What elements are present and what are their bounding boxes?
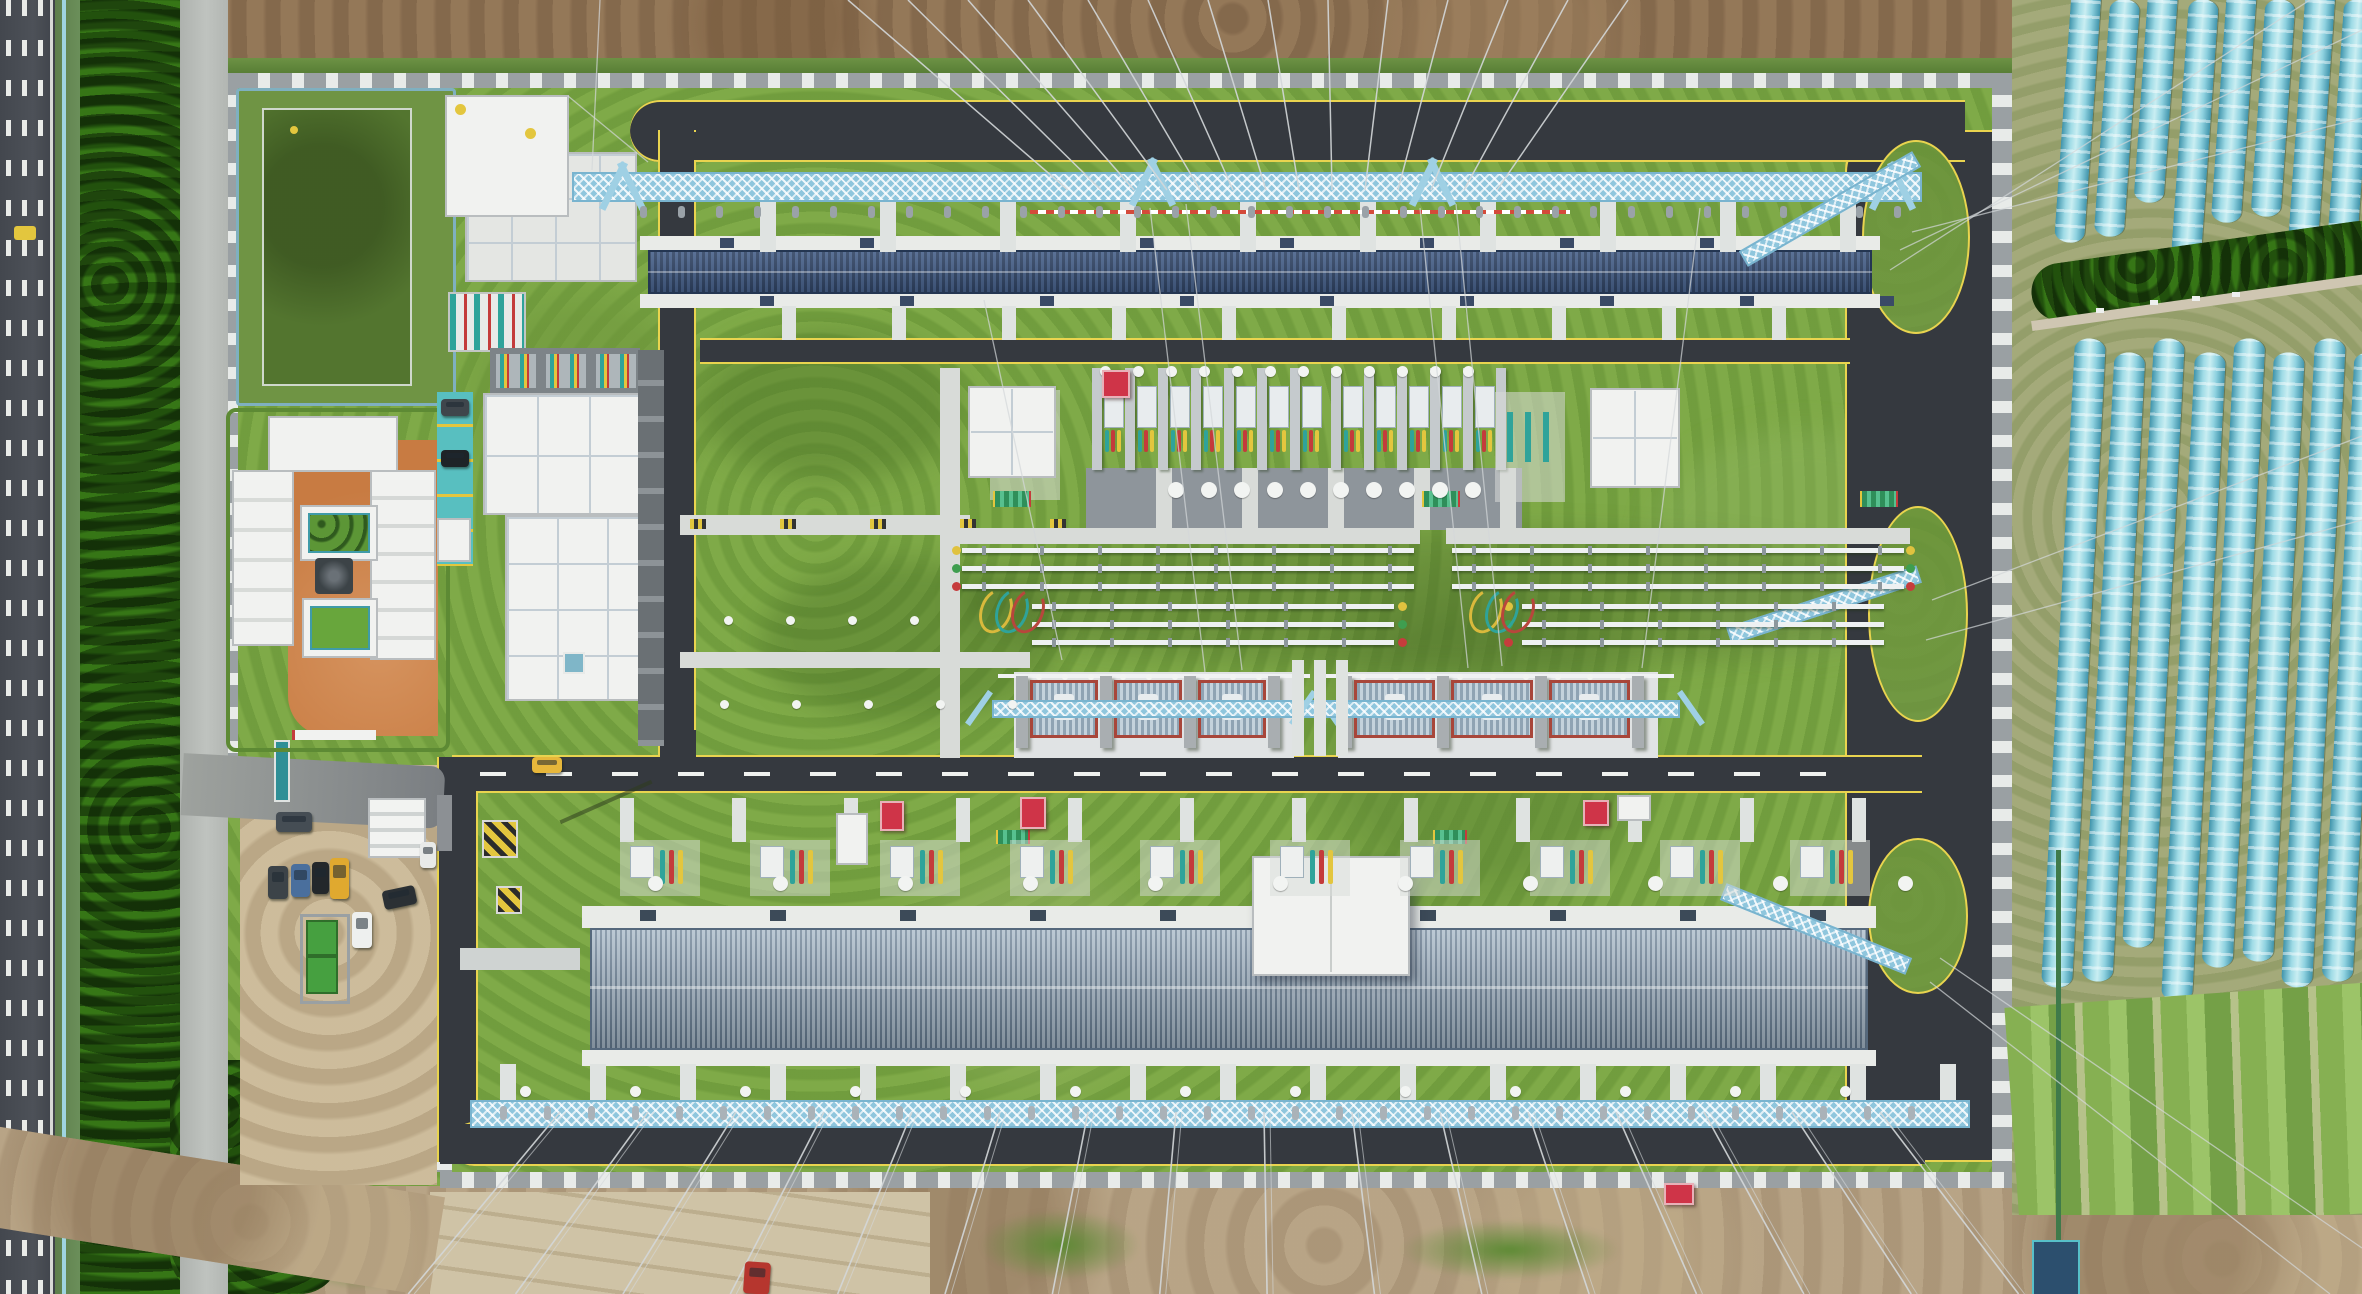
- insulator-dot: [1020, 206, 1027, 218]
- insulator-dot: [1134, 206, 1141, 218]
- bay-equipment: [1137, 386, 1157, 428]
- busbar-insulator: [1040, 582, 1044, 591]
- insulator-dot: [984, 1106, 991, 1120]
- busbar-insulator: [1284, 620, 1288, 629]
- ly-cable: [1068, 850, 1073, 884]
- cable-rack: [995, 491, 1029, 507]
- bay-cable: [1389, 430, 1393, 452]
- busbar-insulator: [1530, 546, 1534, 555]
- concrete-pier: [1516, 798, 1530, 842]
- insulator-dot: [1380, 1106, 1387, 1120]
- phase-marker: [1398, 602, 1407, 611]
- bay-equipment: [1442, 386, 1462, 428]
- insulator-dot: [1590, 206, 1597, 218]
- utility-hut: [437, 518, 471, 562]
- stone: [1234, 482, 1250, 498]
- ly-cable: [1458, 850, 1463, 884]
- duct-pier: [1314, 660, 1326, 756]
- busbar-insulator: [1832, 620, 1836, 629]
- stone: [1267, 482, 1283, 498]
- bushing: [1523, 674, 1529, 680]
- bay-equipment: [1170, 386, 1190, 428]
- ly-cable: [790, 850, 795, 884]
- busbar-insulator: [1878, 546, 1882, 555]
- bay-cable: [1237, 430, 1241, 452]
- bay-cable: [1204, 430, 1208, 452]
- stone: [1510, 1086, 1521, 1097]
- stone: [648, 876, 663, 891]
- busbar-insulator: [1530, 582, 1534, 591]
- bushing: [1555, 674, 1561, 680]
- busbar-insulator: [1052, 602, 1056, 611]
- bushing: [1204, 674, 1210, 680]
- bay-divider: [1397, 368, 1407, 470]
- stone: [1400, 1086, 1411, 1097]
- bay-equipment: [1203, 386, 1223, 428]
- busbar-insulator: [1110, 602, 1114, 611]
- insulator-dot: [1894, 206, 1901, 218]
- bay-cable: [1383, 430, 1387, 452]
- fire-equipment-box: [1583, 800, 1609, 826]
- blue-tarp-hut: [2032, 1240, 2080, 1294]
- phase-marker: [1504, 638, 1513, 647]
- ly-unit: [1280, 846, 1304, 878]
- insulator-dot: [940, 1106, 947, 1120]
- vehicle-speck: [2232, 292, 2240, 297]
- bay-cable: [1476, 430, 1480, 452]
- bay-cable: [1138, 430, 1142, 452]
- grass-island: [1868, 838, 1968, 994]
- bay-divider: [1463, 368, 1473, 470]
- busbar-insulator: [1820, 582, 1824, 591]
- concrete-pier: [956, 798, 970, 842]
- insulator-dot: [1780, 206, 1787, 218]
- concrete-pier: [770, 1064, 786, 1102]
- ring-road-top: [630, 100, 1965, 162]
- utility-hut: [836, 813, 868, 865]
- ly-cable: [669, 850, 674, 884]
- service-road: [180, 0, 228, 1294]
- stone: [720, 700, 729, 709]
- stone: [792, 700, 801, 709]
- busbar-insulator: [1774, 602, 1778, 611]
- ly-cable: [1328, 850, 1333, 884]
- ly-cable: [1198, 850, 1203, 884]
- stone: [1730, 1086, 1741, 1097]
- insulator-dot: [792, 206, 799, 218]
- bay-cable: [1350, 430, 1354, 452]
- duct-pier: [1336, 660, 1348, 756]
- concrete-pier: [1130, 1064, 1146, 1102]
- conductor-tube: [998, 674, 1310, 678]
- stone: [520, 1086, 531, 1097]
- bushing: [1146, 674, 1152, 680]
- bushing: [1120, 674, 1126, 680]
- hvac-unit: [1680, 910, 1696, 921]
- busbar-insulator: [1040, 564, 1044, 573]
- insulator-dot: [1096, 206, 1103, 218]
- ly-cable: [920, 850, 925, 884]
- busbar-insulator: [1600, 638, 1604, 647]
- bay-cable: [1243, 430, 1247, 452]
- concrete-pier: [680, 1064, 696, 1102]
- bay-cable: [1507, 412, 1513, 462]
- insulator-dot: [500, 1106, 507, 1120]
- courtyard-building-top: [268, 416, 398, 472]
- concrete-pier: [860, 1064, 876, 1102]
- paving-stone-yard: [430, 1192, 930, 1294]
- transformer-gantry: [992, 700, 1316, 718]
- concrete-pier: [1670, 1064, 1686, 1102]
- yellow-bus: [330, 858, 349, 899]
- busbar-insulator: [1472, 582, 1476, 591]
- busbar-tube: [1522, 622, 1884, 627]
- concrete-pier: [1480, 196, 1496, 252]
- insulator-dot: [1160, 1106, 1167, 1120]
- transformer-gantry: [1316, 700, 1680, 718]
- car-windshield: [272, 872, 285, 882]
- busbar-insulator: [1156, 582, 1160, 591]
- perimeter-wall-bottom: [440, 1172, 2012, 1188]
- office-rooftop-bay: [546, 354, 586, 388]
- car-windshield: [423, 847, 433, 855]
- concrete-pier: [1740, 798, 1754, 842]
- busbar-insulator: [1272, 564, 1276, 573]
- busbar-insulator: [1226, 602, 1230, 611]
- stone: [1333, 482, 1349, 498]
- concrete-pier: [1068, 798, 1082, 842]
- insulator-dot: [1556, 1106, 1563, 1120]
- stone: [786, 616, 795, 625]
- concrete-pier: [1310, 1064, 1326, 1102]
- canopy: [368, 798, 426, 858]
- concrete-pier: [1442, 306, 1456, 340]
- cable-rack: [1862, 491, 1896, 507]
- insulator-dot: [1666, 206, 1673, 218]
- insulator-dot: [1058, 206, 1065, 218]
- courtyard-building-right: [370, 470, 436, 660]
- busbar-frame: [1446, 528, 1910, 544]
- garden-pool-lower-water: [310, 606, 370, 650]
- highway-lane-dashes: [22, 0, 27, 1294]
- insulator-dot: [1438, 206, 1445, 218]
- concrete-pier: [1292, 798, 1306, 842]
- insulator-dot: [1776, 1106, 1783, 1120]
- busbar-insulator: [1878, 582, 1882, 591]
- bay-cable: [1543, 412, 1549, 462]
- insulator-dot: [1644, 1106, 1651, 1120]
- concrete-pier: [1404, 798, 1418, 842]
- bay-equipment: [1475, 386, 1495, 428]
- hvac-unit: [1180, 296, 1194, 306]
- office-skylight: [563, 652, 585, 674]
- bay-divider: [1191, 368, 1201, 470]
- stone: [1840, 1086, 1851, 1097]
- aerial-substation-photo: [0, 0, 2362, 1294]
- insulator-dot: [720, 1106, 727, 1120]
- bay-cable: [1144, 430, 1148, 452]
- top-grass-fringe: [225, 58, 2057, 74]
- utility-hut: [1617, 795, 1651, 821]
- bay-cable: [1482, 430, 1486, 452]
- phase-marker: [1398, 620, 1407, 629]
- hvac-unit: [1420, 238, 1434, 248]
- hvac-unit: [1700, 238, 1714, 248]
- busbar-insulator: [1226, 638, 1230, 647]
- junction: [1845, 1124, 1925, 1164]
- highway-lane-dashes: [38, 0, 43, 1294]
- pond-marker: [290, 126, 298, 134]
- busbar-insulator: [1110, 620, 1114, 629]
- busbar-insulator: [1774, 638, 1778, 647]
- ly-unit: [1800, 846, 1824, 878]
- car-windshield: [356, 918, 369, 929]
- bay-cable: [1356, 430, 1360, 452]
- bay-divider: [1158, 368, 1168, 470]
- bay-cable: [1315, 430, 1319, 452]
- busbar-insulator: [1832, 638, 1836, 647]
- busbar-insulator: [1272, 546, 1276, 555]
- tree-belt: [80, 0, 180, 1294]
- phase-marker: [1906, 582, 1915, 591]
- bay-cable: [1249, 430, 1253, 452]
- hvac-unit: [900, 910, 916, 921]
- junction: [660, 730, 696, 760]
- busbar-insulator: [1388, 546, 1392, 555]
- insulator-dot: [1028, 1106, 1035, 1120]
- bushing: [1620, 674, 1626, 680]
- phase-marker: [1398, 638, 1407, 647]
- ly-cable: [799, 850, 804, 884]
- walkway-bottom-left: [460, 948, 580, 970]
- hvac-unit: [1160, 910, 1176, 921]
- busbar-insulator: [1156, 564, 1160, 573]
- insulator-dot: [1072, 1106, 1079, 1120]
- hvac-unit: [860, 238, 874, 248]
- bldg-seam: [1593, 437, 1677, 439]
- bay-divider: [1092, 368, 1102, 470]
- concrete-pier: [1760, 1064, 1776, 1102]
- car-windshield: [537, 760, 556, 765]
- bay-divider: [1364, 368, 1374, 470]
- ly-cable: [1839, 850, 1844, 884]
- hvac-unit: [760, 296, 774, 306]
- insulator-dot: [640, 206, 647, 218]
- busbar-insulator: [1820, 564, 1824, 573]
- bay-cable: [1150, 430, 1154, 452]
- busbar-tube: [1522, 640, 1884, 645]
- insulator-dot: [678, 206, 685, 218]
- courtyard-sign-strip: [292, 730, 376, 740]
- stone: [630, 1086, 641, 1097]
- stone: [1199, 366, 1210, 377]
- bay-cable: [1309, 430, 1313, 452]
- bay-cable: [1377, 430, 1381, 452]
- insulator-dot: [716, 206, 723, 218]
- bay-equipment: [1343, 386, 1363, 428]
- car-windshield: [282, 816, 305, 822]
- ly-cable: [1579, 850, 1584, 884]
- busbar-tube: [1032, 604, 1394, 609]
- bay-cable: [1488, 430, 1492, 452]
- insulator-dot: [1856, 206, 1863, 218]
- pavilion: [315, 558, 353, 594]
- busbar-insulator: [1330, 546, 1334, 555]
- busbar-tube: [1522, 604, 1884, 609]
- concrete-pier: [880, 196, 896, 252]
- insulator-dot: [852, 1106, 859, 1120]
- busbar-insulator: [1098, 546, 1102, 555]
- busbar-insulator: [1168, 620, 1172, 629]
- stone: [1290, 1086, 1301, 1097]
- ly-cable: [1570, 850, 1575, 884]
- busbar-insulator: [1214, 582, 1218, 591]
- vehicle-speck: [2150, 300, 2158, 305]
- hvac-unit: [1030, 910, 1046, 921]
- stone: [848, 616, 857, 625]
- stone: [1023, 876, 1038, 891]
- bay-cable: [1276, 430, 1280, 452]
- busbar-insulator: [1588, 582, 1592, 591]
- gray-car: [276, 812, 312, 832]
- bay-equipment: [1409, 386, 1429, 428]
- ly-cable: [1050, 850, 1055, 884]
- busbar-insulator: [982, 546, 986, 555]
- stone: [1300, 482, 1316, 498]
- busbar-insulator: [1600, 620, 1604, 629]
- stone: [898, 876, 913, 891]
- ly-cable: [1709, 850, 1714, 884]
- car-windshield: [315, 868, 326, 878]
- bushing: [1360, 674, 1366, 680]
- busbar-insulator: [1542, 620, 1546, 629]
- skylight-dot: [455, 104, 466, 115]
- bay-divider: [1430, 368, 1440, 470]
- insulator-dot: [1362, 206, 1369, 218]
- vehicle-speck: [2096, 308, 2104, 313]
- busbar-insulator: [1588, 564, 1592, 573]
- yellow-hatched-pad: [496, 886, 522, 914]
- car-windshield: [446, 402, 464, 407]
- insulator-dot: [1292, 1106, 1299, 1120]
- busbar-insulator: [1762, 582, 1766, 591]
- concrete-pier: [1940, 1064, 1956, 1102]
- hvac-unit: [1560, 238, 1574, 248]
- concrete-pier: [1772, 306, 1786, 340]
- stone: [1180, 1086, 1191, 1097]
- busbar-insulator: [1284, 638, 1288, 647]
- insulator-dot: [1116, 1106, 1123, 1120]
- car-windshield: [749, 1267, 766, 1278]
- highway-lane-dashes: [6, 0, 11, 1294]
- bay-cable: [1410, 430, 1414, 452]
- stone: [1898, 876, 1913, 891]
- bay-cable: [1270, 430, 1274, 452]
- hvac-unit: [1320, 296, 1334, 306]
- busbar-insulator: [1704, 564, 1708, 573]
- busbar-insulator: [1052, 638, 1056, 647]
- hvac-unit: [720, 238, 734, 248]
- white-car: [352, 912, 372, 948]
- insulator-dot: [896, 1106, 903, 1120]
- phase-marker: [952, 564, 961, 573]
- stone: [1398, 876, 1413, 891]
- insulator-dot: [944, 206, 951, 218]
- stone: [1273, 876, 1288, 891]
- ly-cable: [1700, 850, 1705, 884]
- stone: [1366, 482, 1382, 498]
- insulator-dot: [1512, 1106, 1519, 1120]
- stone: [1232, 366, 1243, 377]
- ly-unit: [1670, 846, 1694, 878]
- bushing: [1172, 674, 1178, 680]
- bay-cable: [1282, 430, 1286, 452]
- concrete-pier: [1180, 798, 1194, 842]
- ly-cable: [1059, 850, 1064, 884]
- bay-cable: [1171, 430, 1175, 452]
- busbar-insulator: [1472, 546, 1476, 555]
- insulator-dot: [1248, 206, 1255, 218]
- busbar-tube: [1032, 622, 1394, 627]
- stone: [1133, 366, 1144, 377]
- bay-cable: [1216, 430, 1220, 452]
- car-windshield: [388, 889, 410, 899]
- walkway-busbar-south: [680, 652, 1030, 668]
- ly-cable: [1588, 850, 1593, 884]
- phase-marker: [952, 546, 961, 555]
- bay-cable: [1443, 430, 1447, 452]
- fire-equipment-box: [1020, 797, 1046, 829]
- equipment-pad-c: [448, 292, 526, 352]
- car-windshield: [333, 865, 345, 877]
- bay-divider: [1290, 368, 1300, 470]
- bay-cable: [1210, 430, 1214, 452]
- hvac-unit: [1550, 910, 1566, 921]
- busbar-insulator: [1330, 582, 1334, 591]
- insulator-dot: [632, 1106, 639, 1120]
- parked-car: [441, 450, 469, 467]
- walkway-tick: [780, 519, 796, 529]
- stone: [1430, 366, 1441, 377]
- concrete-pier: [1852, 798, 1866, 842]
- hvac-unit: [1280, 238, 1294, 248]
- insulator-dot: [1908, 1106, 1915, 1120]
- insulator-dot: [676, 1106, 683, 1120]
- walkway-tick: [690, 519, 706, 529]
- office-east-wing: [638, 350, 664, 746]
- busbar-insulator: [1716, 620, 1720, 629]
- ly-unit: [630, 846, 654, 878]
- busbar-insulator: [1716, 602, 1720, 611]
- bushing: [1490, 674, 1496, 680]
- concrete-pier: [1002, 306, 1016, 340]
- stone: [1620, 1086, 1631, 1097]
- ly-unit: [760, 846, 784, 878]
- busbar-insulator: [1588, 546, 1592, 555]
- ly-cable: [1310, 850, 1315, 884]
- stone: [1166, 366, 1177, 377]
- car-windshield: [446, 453, 464, 458]
- stone: [740, 1086, 751, 1097]
- highway-edge-line: [50, 0, 53, 1294]
- junction: [440, 1124, 480, 1164]
- insulator-dot: [1400, 206, 1407, 218]
- stone: [1148, 876, 1163, 891]
- bay-cable: [1455, 430, 1459, 452]
- weed-patch: [1400, 1220, 1620, 1280]
- concrete-pier: [1720, 196, 1736, 252]
- busbar-insulator: [1600, 602, 1604, 611]
